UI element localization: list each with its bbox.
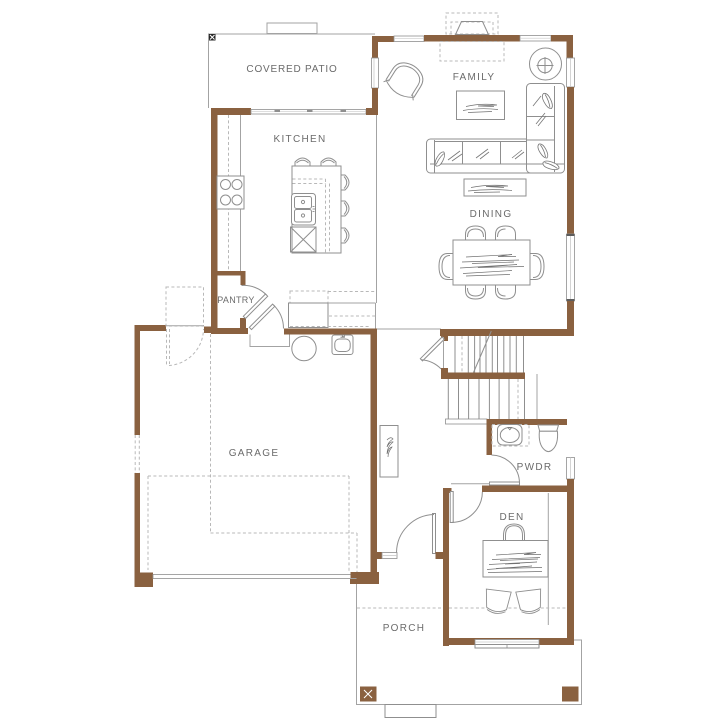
svg-text:DINING: DINING: [470, 209, 513, 220]
svg-text:KITCHEN: KITCHEN: [274, 134, 327, 145]
svg-text:PANTRY: PANTRY: [217, 295, 254, 305]
svg-text:GARAGE: GARAGE: [229, 448, 280, 459]
svg-text:PWDR: PWDR: [517, 462, 553, 473]
svg-text:COVERED PATIO: COVERED PATIO: [246, 64, 337, 75]
svg-text:FAMILY: FAMILY: [453, 72, 496, 83]
svg-text:PORCH: PORCH: [383, 623, 426, 634]
svg-text:DEN: DEN: [499, 512, 524, 523]
